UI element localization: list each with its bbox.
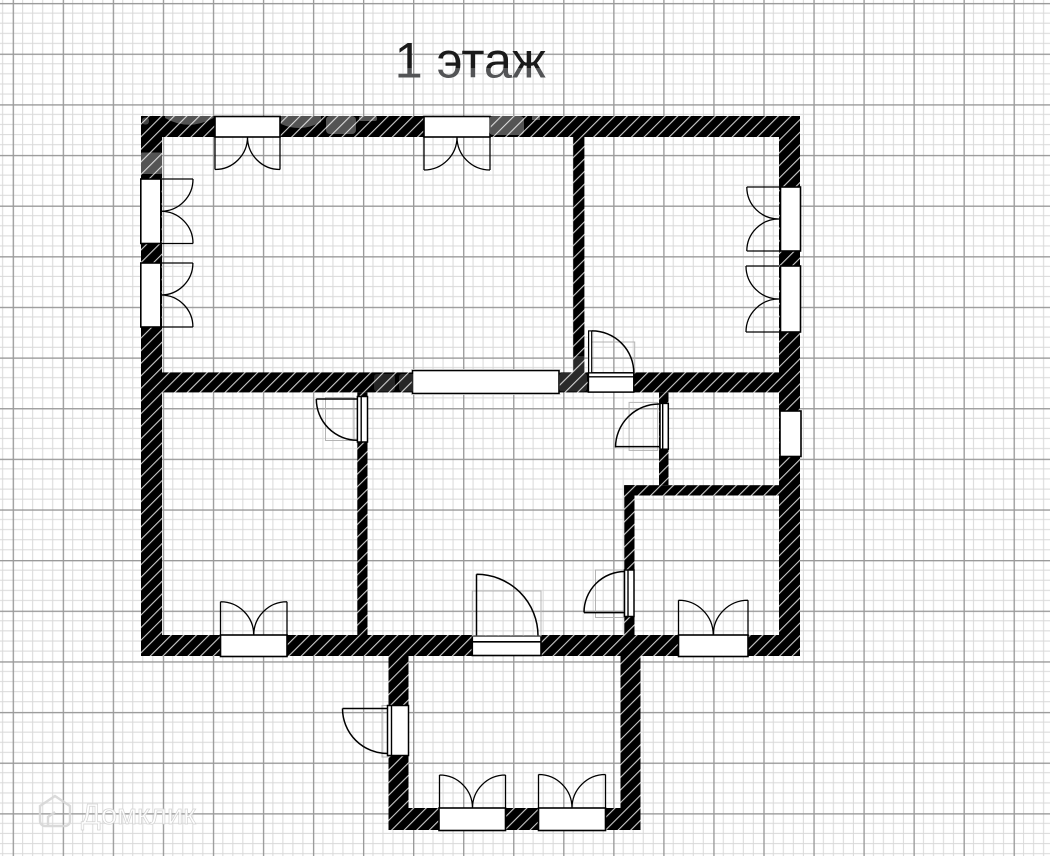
svg-text:Домклик: Домклик	[81, 799, 196, 831]
